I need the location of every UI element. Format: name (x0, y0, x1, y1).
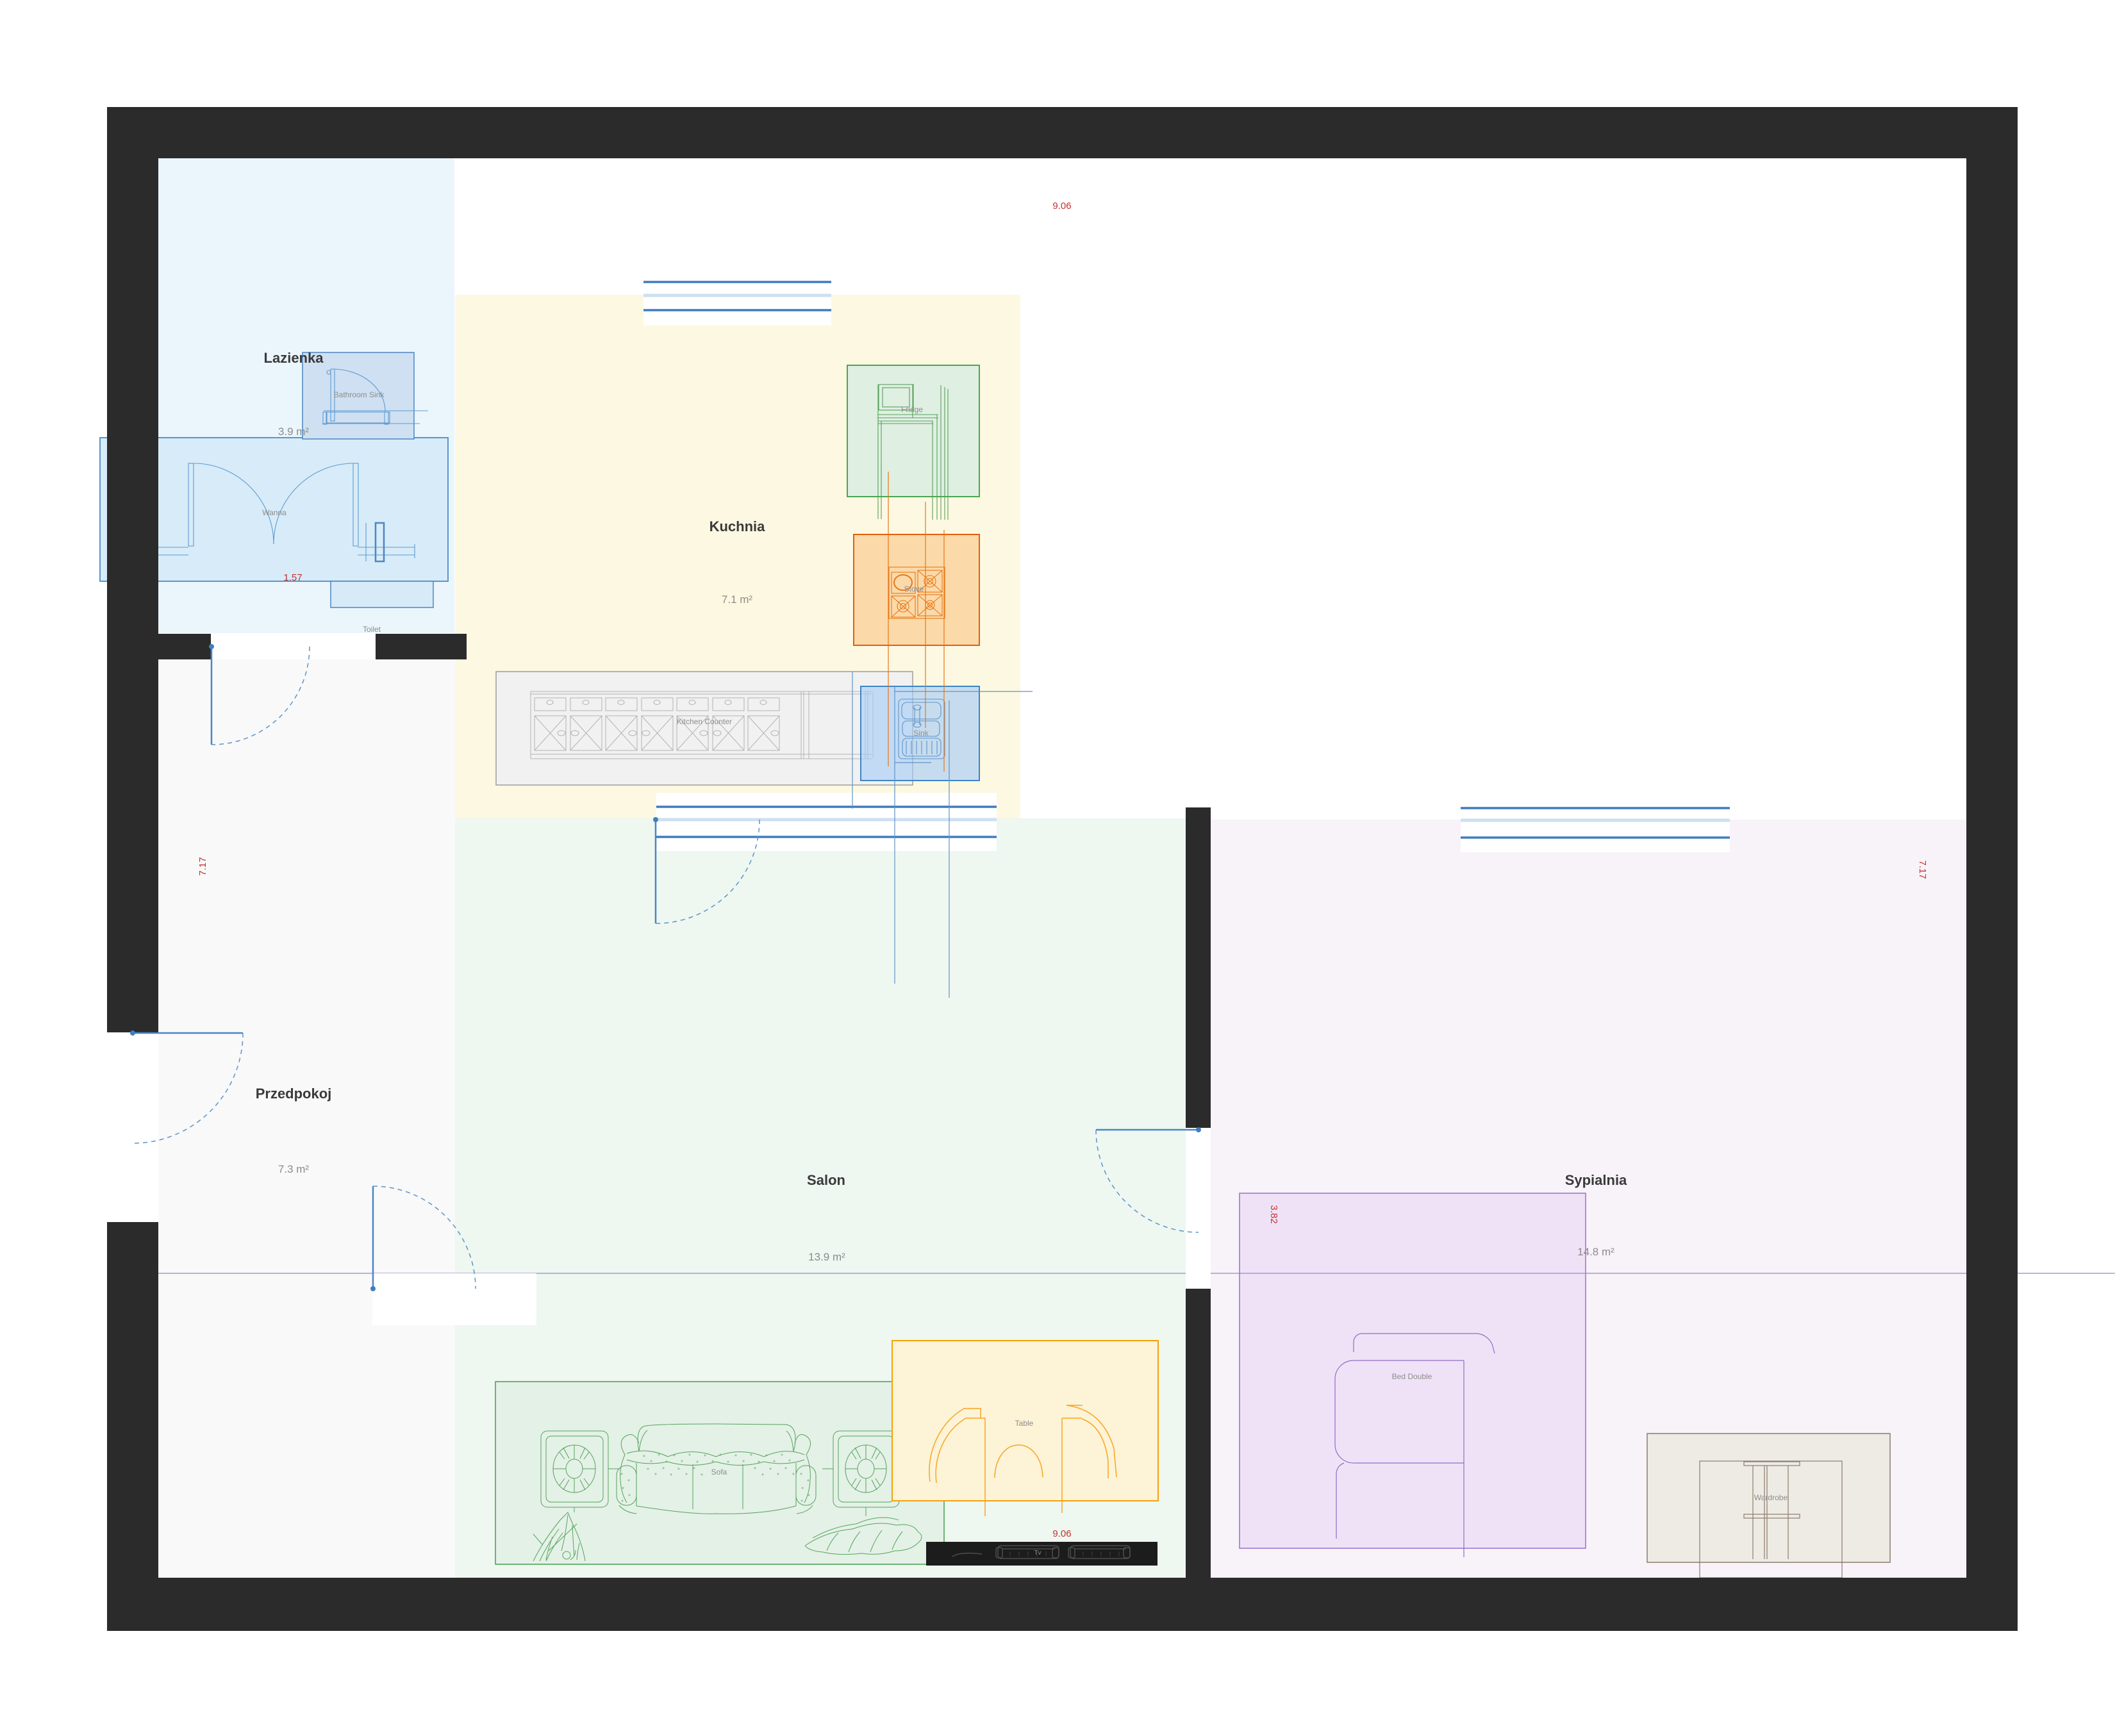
svg-text:Salon: Salon (807, 1172, 845, 1188)
svg-text:Kuchnia: Kuchnia (709, 518, 766, 534)
svg-text:7.1 m²: 7.1 m² (722, 593, 753, 606)
svg-text:Wanna: Wanna (262, 508, 286, 517)
svg-text:Sink: Sink (913, 729, 929, 738)
svg-text:Table: Table (1015, 1419, 1034, 1428)
svg-text:Tv: Tv (1034, 1550, 1041, 1557)
svg-text:7.3 m²: 7.3 m² (278, 1163, 310, 1175)
svg-text:3.82: 3.82 (1268, 1205, 1279, 1223)
svg-text:Wardrobe: Wardrobe (1754, 1493, 1788, 1502)
svg-text:9.06: 9.06 (1052, 201, 1071, 211)
svg-text:Kitchen Counter: Kitchen Counter (677, 717, 732, 726)
svg-text:Lazienka: Lazienka (264, 350, 324, 366)
svg-text:9.06: 9.06 (1052, 1528, 1071, 1539)
svg-text:Sypialnia: Sypialnia (1565, 1172, 1627, 1188)
svg-text:13.9 m²: 13.9 m² (808, 1251, 845, 1263)
svg-text:Sofa: Sofa (711, 1467, 727, 1476)
svg-text:3.9 m²: 3.9 m² (278, 426, 310, 438)
svg-text:Fridge: Fridge (901, 405, 923, 414)
svg-text:Bathroom Sink: Bathroom Sink (334, 390, 385, 399)
svg-text:7.17: 7.17 (1917, 860, 1928, 879)
svg-text:1.57: 1.57 (283, 572, 302, 583)
svg-text:Bed Double: Bed Double (1392, 1372, 1432, 1381)
svg-text:Toilet: Toilet (363, 625, 381, 634)
svg-text:Stove: Stove (904, 584, 924, 593)
svg-text:7.17: 7.17 (197, 857, 208, 875)
svg-text:Przedpokoj: Przedpokoj (256, 1086, 332, 1102)
svg-text:14.8 m²: 14.8 m² (1577, 1246, 1614, 1258)
